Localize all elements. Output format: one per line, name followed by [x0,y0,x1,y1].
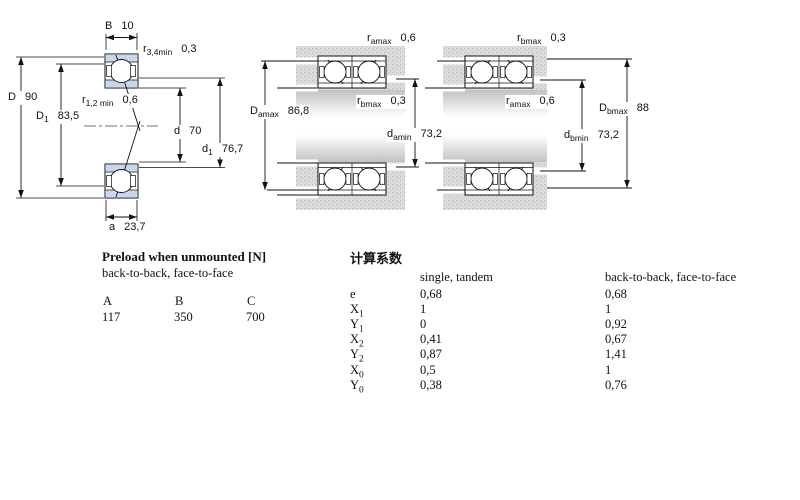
dim-label-Damax: Damax86,8 [249,105,310,119]
factor-row-x1: X111 [350,302,790,317]
preload-value-a: 117 [102,310,120,325]
dim-label-bore-d: d70 [173,125,202,139]
factor-row-x2: X20,410,67 [350,332,790,347]
dim-label-damin: damin73,2 [386,128,443,142]
dim-label-d1: d176,7 [201,143,244,157]
factor-row-e: e0,680,68 [350,287,790,302]
dim-label-rbmax-mid: rbmax0,3 [356,95,407,109]
preload-col-header-a: A [103,294,112,309]
dim-label-r12min: r1,2 min0,6 [81,94,139,108]
dim-label-ramax-right: ramax0,6 [505,95,556,109]
factor-row-y2: Y20,871,41 [350,347,790,362]
factors-col-header-back-to-back: back-to-back, face-to-face [605,270,736,285]
bearing-datasheet-page: B10 r3,4min0,3 D90 D183,5 r1,2 min0,6 d7… [0,0,800,500]
factors-table-title: 计算系数 [350,248,402,267]
dim-label-dbmin: dbmin73,2 [563,129,620,143]
mounting-diagram-b [425,46,632,210]
preload-col-header-c: C [247,294,255,309]
preload-col-header-b: B [175,294,183,309]
dim-label-rbmax-right: rbmax0,3 [516,32,567,46]
preload-table-subtitle: back-to-back, face-to-face [102,266,233,281]
dim-label-r34min: r3,4min0,3 [142,43,197,57]
preload-table-title: Preload when unmounted [N] [102,249,266,265]
factor-row-y1: Y100,92 [350,317,790,332]
dim-label-width-B: B10 [104,20,135,34]
dim-label-D1: D183,5 [35,110,80,124]
dim-label-ramax-mid: ramax0,6 [366,32,417,46]
preload-value-b: 350 [174,310,193,325]
factor-row-y0: Y00,380,76 [350,378,790,393]
dim-label-Dbmax: Dbmax88 [598,102,650,116]
factors-col-header-single-tandem: single, tandem [420,270,493,285]
factor-row-x0: X00,51 [350,363,790,378]
dim-label-outer-diameter-D: D90 [7,91,38,105]
preload-value-c: 700 [246,310,265,325]
dim-label-a: a23,7 [108,221,147,235]
